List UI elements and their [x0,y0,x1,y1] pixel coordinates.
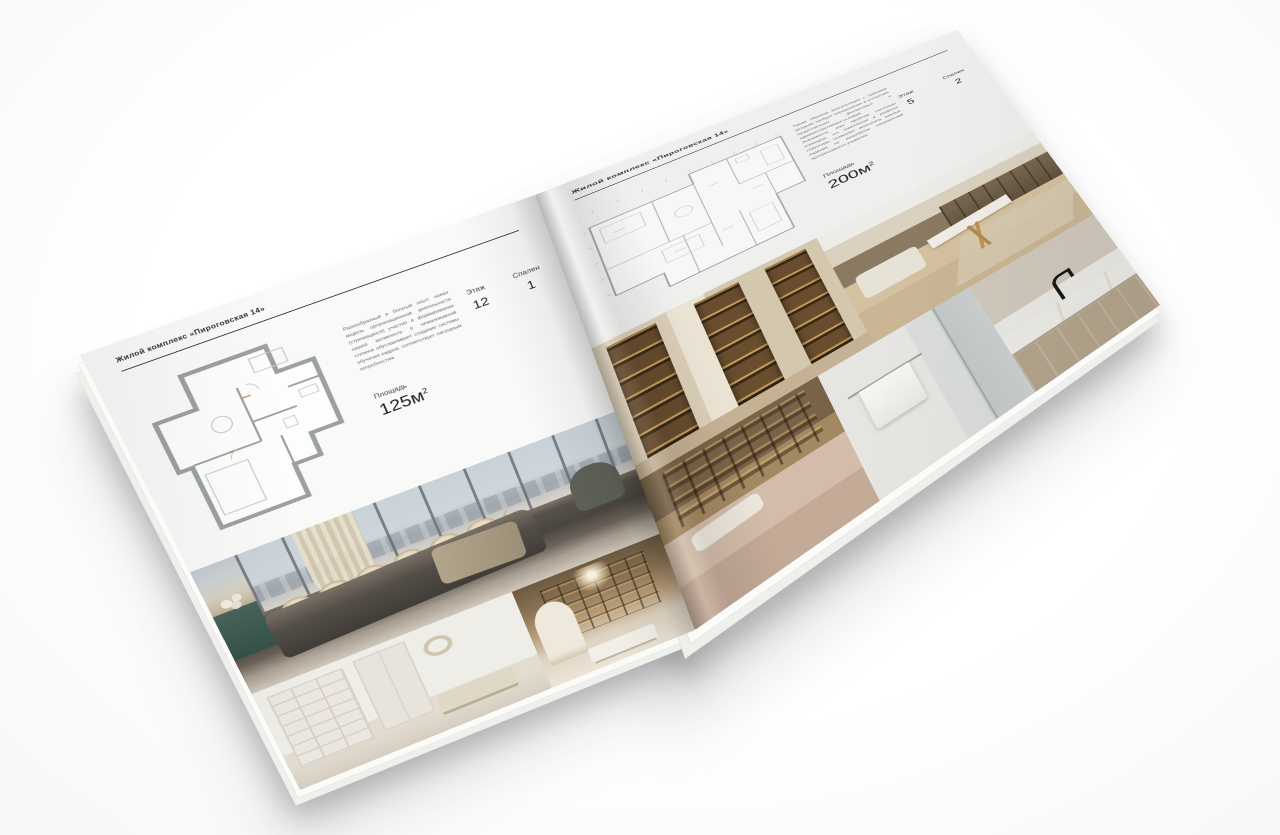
white-towel [859,362,928,430]
stat-bedrooms: Спален 1 [501,260,557,300]
stat-floor: Этаж 12 [455,280,503,317]
apartment-description: Разнообразный и богатый опыт: новая моде… [342,290,466,374]
faucet-spout [1067,270,1074,277]
stat-area: Площадь 200м2 [822,154,878,192]
stat-area: Площадь 125м2 [373,376,432,420]
backdrop: Жилой комплекс «Пироговская 14» Разнообр… [0,0,1280,835]
wall-shelving [266,668,376,769]
stat-floor: Этаж 5 [888,85,930,112]
white-sofa [855,246,928,300]
stat-bedrooms: Спален 2 [933,65,979,93]
round-wall-decor [420,631,456,660]
